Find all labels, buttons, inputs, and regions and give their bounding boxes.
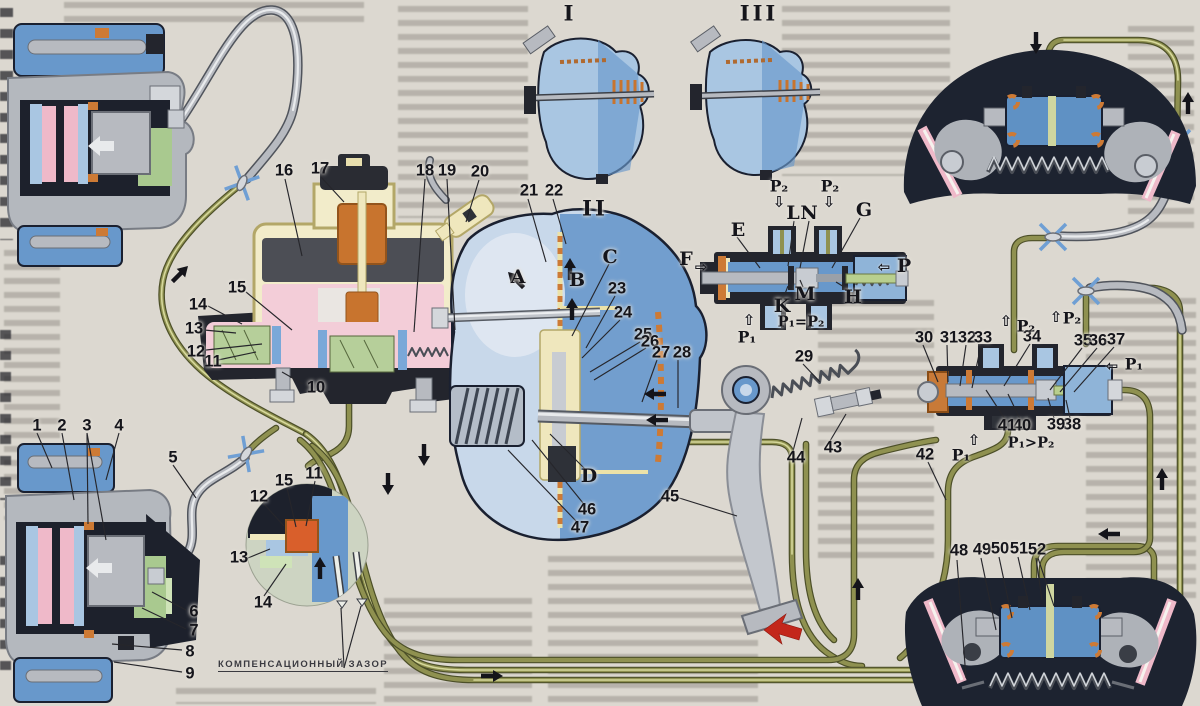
callout-n12: 12: [187, 343, 205, 362]
callout-n42: 42: [916, 446, 934, 465]
callout-n47: 47: [571, 519, 589, 538]
hollow-arrow-left-icon: ⇦: [1106, 357, 1119, 375]
leader-line: [830, 414, 846, 441]
callout-i15: 15: [275, 472, 293, 491]
callout-p2d: P₂: [1063, 309, 1081, 328]
flow-arrow-icon: [168, 262, 192, 286]
leader-line: [114, 662, 182, 672]
callout-n4: 4: [114, 417, 123, 436]
callout-n45: 45: [661, 488, 679, 507]
brake-pipe: [806, 444, 834, 640]
hollow-arrow-up-icon: ⇧: [1000, 312, 1013, 330]
callout-i12: 12: [250, 488, 268, 507]
hollow-arrow-down-icon: ⇩: [773, 193, 786, 211]
callout-n33: 33: [974, 329, 992, 348]
hollow-arrow-up-icon: ⇧: [743, 311, 756, 329]
callout-sec3: III: [740, 1, 778, 26]
flow-arrow-icon: [382, 473, 394, 495]
leader-line: [928, 462, 946, 500]
callout-n48: 48: [950, 542, 968, 561]
vacuum-booster-variant-3: [690, 26, 820, 180]
callout-n20: 20: [471, 163, 489, 182]
callout-n21: 21: [520, 182, 538, 201]
callout-n19: 19: [438, 162, 456, 181]
callout-n39: 39: [1047, 416, 1065, 435]
callout-lC: C: [602, 246, 617, 268]
flow-arrow-icon: [1182, 92, 1194, 114]
hollow-arrow-left-icon: ⇦: [878, 258, 891, 276]
callout-n5: 5: [168, 449, 177, 468]
callout-n2: 2: [57, 417, 66, 436]
callout-n10: 10: [307, 379, 325, 398]
callout-n36: 36: [1089, 332, 1107, 351]
callout-n52: 52: [1028, 541, 1046, 560]
hollow-arrow-right-icon: ⇨: [695, 258, 708, 276]
callout-lL: L: [786, 202, 799, 224]
callout-n41: 41: [998, 417, 1016, 436]
callout-n44: 44: [787, 449, 805, 468]
callout-n30: 30: [915, 329, 933, 348]
callout-i13: 13: [230, 549, 248, 568]
callout-n27: 27: [652, 344, 670, 363]
callout-n17: 17: [311, 160, 329, 179]
hollow-arrow-up-icon: ⇧: [968, 431, 981, 449]
flow-arrow-icon: [1156, 468, 1168, 490]
callout-n7: 7: [189, 622, 198, 641]
leader-line: [173, 465, 196, 498]
stop-light-switch: [814, 385, 882, 416]
callout-lA: A: [511, 266, 526, 288]
callout-n50: 50: [991, 540, 1009, 559]
callout-n15: 15: [228, 279, 246, 298]
callout-n37: 37: [1107, 331, 1125, 350]
flow-arrow-icon: [1098, 528, 1120, 540]
callout-n6: 6: [189, 603, 198, 622]
pedal-return-spring: [766, 349, 863, 398]
vacuum-booster-variant-1: [523, 26, 654, 184]
rear-drum-brake-top: [904, 50, 1196, 204]
callout-sec1: I: [564, 1, 577, 26]
callout-n16: 16: [275, 162, 293, 181]
callout-lM: M: [794, 283, 815, 305]
callout-lP: P: [897, 255, 911, 277]
callout-n43: 43: [824, 439, 842, 458]
callout-n13: 13: [185, 320, 203, 339]
callout-p1b: P₁: [1125, 355, 1143, 374]
callout-lB: B: [569, 269, 585, 291]
vacuum-booster-main: [432, 192, 746, 552]
callout-lD: D: [581, 465, 597, 487]
hollow-arrow-down-icon: ⇩: [823, 193, 836, 211]
callout-n11: 11: [204, 353, 221, 372]
callout-peq: P₁=P₂: [778, 314, 825, 331]
front-caliper-top-left: [8, 24, 194, 266]
callout-sec2: II: [582, 196, 608, 221]
callout-n22: 22: [545, 182, 563, 201]
callout-n29: 29: [795, 348, 813, 367]
callout-n31: 31: [940, 329, 958, 348]
callout-n18: 18: [416, 162, 434, 181]
callout-pgt: P₁>P₂: [1008, 435, 1055, 452]
callout-lG: G: [856, 199, 872, 221]
front-caliper-bottom-left: [6, 444, 200, 702]
callout-n8: 8: [185, 643, 194, 662]
brake-system-diagram: [0, 0, 1200, 706]
callout-n49: 49: [973, 541, 991, 560]
hollow-arrow-up-icon: ⇧: [1050, 308, 1063, 326]
callout-i14: 14: [254, 594, 272, 613]
scanned-manual-page: КОМПЕНСАЦИОННЫЙ ЗАЗОР IIIIII123456789101…: [0, 0, 1200, 706]
callout-lE: E: [731, 219, 745, 241]
callout-n38: 38: [1063, 416, 1081, 435]
callout-lN: N: [800, 202, 817, 224]
callout-p2c: P₂: [1017, 317, 1035, 336]
leader-line: [676, 497, 737, 516]
inset-caption: КОМПЕНСАЦИОННЫЙ ЗАЗОР: [218, 659, 388, 672]
callout-n9: 9: [185, 665, 194, 684]
callout-n46: 46: [578, 501, 596, 520]
flow-arrow-icon: [418, 444, 430, 466]
callout-n3: 3: [82, 417, 91, 436]
callout-i11: 11: [305, 465, 322, 484]
callout-lH: H: [844, 286, 862, 308]
callout-n1: 1: [32, 417, 41, 436]
callout-lF: F: [679, 248, 693, 270]
front-brake-hose: [181, 10, 298, 179]
callout-n24: 24: [614, 304, 632, 323]
leader-line: [793, 418, 802, 451]
callout-n23: 23: [608, 280, 626, 299]
callout-p1a: P₁: [738, 328, 756, 347]
callout-n51: 51: [1010, 540, 1028, 559]
brake-pipe: [248, 428, 276, 452]
callout-n28: 28: [673, 344, 691, 363]
callout-n14: 14: [189, 296, 207, 315]
